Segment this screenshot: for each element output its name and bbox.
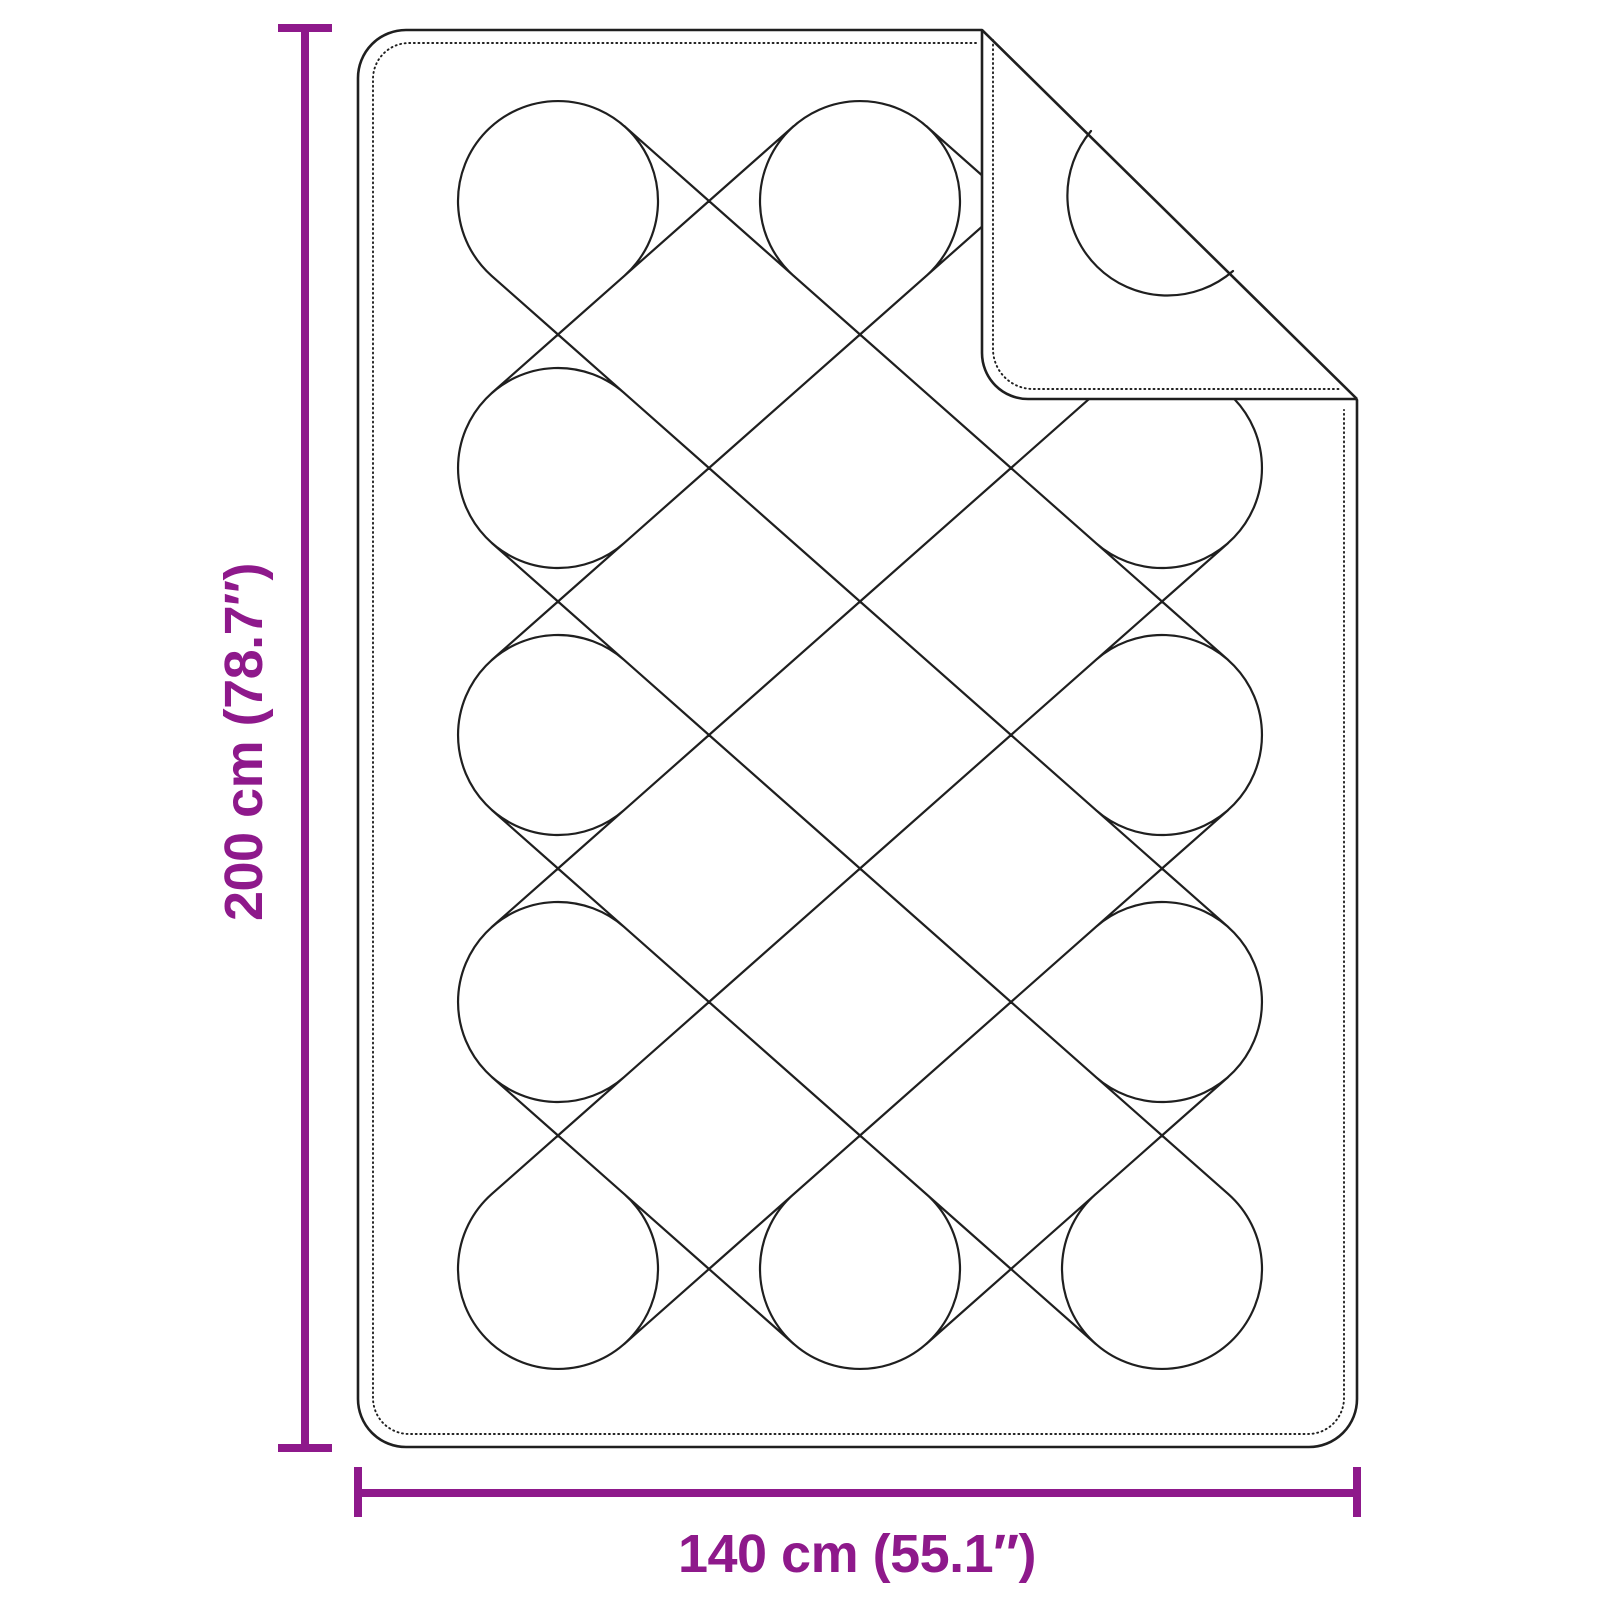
- height-dimension: 200 cm (78.7″): [214, 24, 332, 1452]
- blanket: [358, 30, 1357, 1447]
- blanket-outline: [358, 30, 1357, 1447]
- diagram-canvas: 200 cm (78.7″) 140 cm (55.1″): [0, 0, 1600, 1600]
- height-dimension-label: 200 cm (78.7″): [214, 563, 274, 921]
- folded-corner: [982, 30, 1357, 399]
- width-dimension-line: [358, 1489, 1357, 1497]
- width-dimension-label: 140 cm (55.1″): [678, 1524, 1036, 1584]
- height-dimension-line: [301, 28, 309, 1448]
- height-dimension-bottom-cap: [278, 1444, 332, 1452]
- width-dimension-right-cap: [1353, 1467, 1361, 1517]
- height-dimension-top-cap: [278, 24, 332, 32]
- diagram-page: 200 cm (78.7″) 140 cm (55.1″): [0, 0, 1600, 1600]
- width-dimension: 140 cm (55.1″): [354, 1467, 1361, 1584]
- width-dimension-left-cap: [354, 1467, 362, 1517]
